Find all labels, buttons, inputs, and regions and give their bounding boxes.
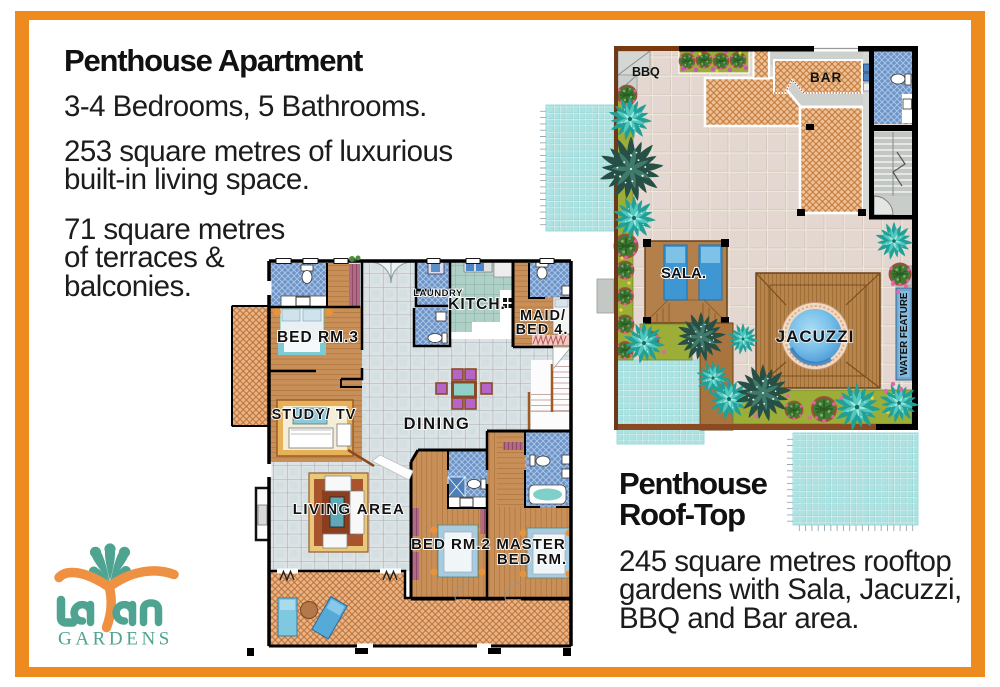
- svg-text:STUDY/ TV: STUDY/ TV: [272, 407, 357, 423]
- svg-text:SALA.: SALA.: [661, 265, 706, 282]
- svg-text:BED RM.: BED RM.: [497, 551, 567, 568]
- svg-text:DINING: DINING: [404, 415, 471, 433]
- svg-text:KITCH.: KITCH.: [448, 296, 506, 313]
- svg-text:JACUZZI: JACUZZI: [776, 327, 855, 346]
- svg-text:BAR: BAR: [810, 70, 842, 85]
- svg-text:BED RM.2: BED RM.2: [411, 536, 491, 553]
- svg-text:BBQ: BBQ: [632, 65, 660, 79]
- svg-text:WATER FEATURE: WATER FEATURE: [899, 292, 910, 375]
- svg-text:GARDENS: GARDENS: [58, 629, 173, 650]
- svg-text:LIVING AREA: LIVING AREA: [293, 501, 406, 518]
- svg-text:BED RM.3: BED RM.3: [277, 329, 359, 346]
